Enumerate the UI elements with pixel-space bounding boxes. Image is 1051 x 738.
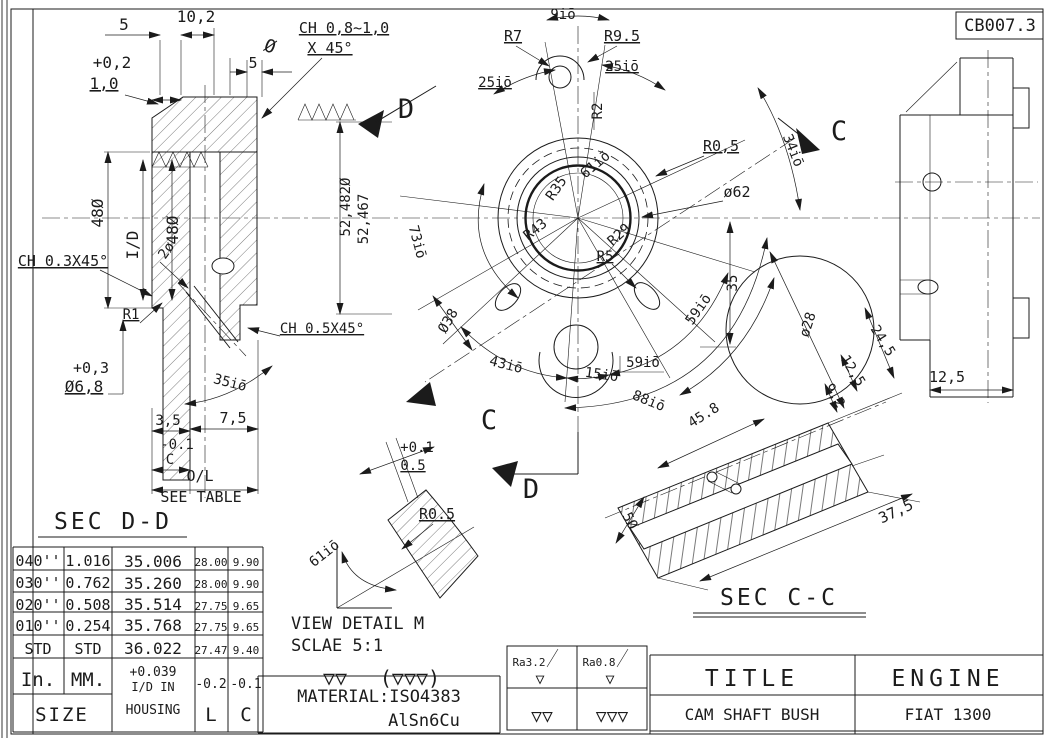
tol-minus-0-1: -0.1 bbox=[160, 437, 194, 453]
side-view bbox=[895, 50, 1038, 403]
detail-tol-plus-0-1: +0.1 bbox=[400, 440, 434, 456]
radius-r1: R1 bbox=[123, 307, 140, 323]
table-cell: 27.75 bbox=[194, 621, 227, 634]
dia-6-8: Ø6,8 bbox=[65, 377, 104, 396]
table-cell: 0.508 bbox=[65, 596, 110, 614]
angle-25-right: 25iō bbox=[605, 59, 639, 75]
radius-r9-5: R9.5 bbox=[604, 27, 640, 45]
finish-ra-finer: Ra0.8 bbox=[582, 656, 615, 669]
title-label: TITLE bbox=[705, 666, 799, 692]
radius-r35: R35 bbox=[543, 174, 571, 204]
dim-52-467: 52,467 bbox=[356, 194, 372, 245]
angle-59-boxed: 59iō bbox=[626, 355, 660, 371]
sec-cc-dim-9-2: 9,2 bbox=[821, 381, 848, 411]
size-table-rows: 040'' 1.016 35.006 28.00 9.90 030'' 0.76… bbox=[15, 552, 259, 658]
finish-tri-double: ▽▽ bbox=[531, 706, 553, 727]
table-cell: 27.47 bbox=[194, 644, 227, 657]
sec-cc-heading: SEC C-C bbox=[720, 585, 838, 611]
radius-r5: R5 bbox=[597, 249, 614, 265]
dia-48-outer: 48Ø bbox=[88, 198, 107, 227]
table-cell: 030'' bbox=[15, 574, 60, 592]
table-header-tol: +0.039 bbox=[130, 665, 177, 680]
chamfer-03-label: CH 0.3X45° bbox=[18, 252, 108, 270]
dim-ol-label: O/L bbox=[186, 467, 213, 485]
chamfer-top-label-2: X 45° bbox=[307, 39, 352, 57]
table-cell: STD bbox=[24, 640, 51, 658]
angle-88: 88iō bbox=[630, 388, 667, 415]
section-letter-c-bottom: C bbox=[481, 405, 497, 436]
table-cell: 9.90 bbox=[233, 578, 260, 591]
finish-tri-single-2: ▽ bbox=[605, 670, 614, 688]
bore-id-label: I/D bbox=[123, 231, 142, 260]
dia-62: ø62 bbox=[723, 183, 750, 201]
radius-r2: R2 bbox=[590, 103, 606, 120]
table-header-housing-2: HOUSING bbox=[126, 703, 181, 718]
angle-59-diagonal: 59iō bbox=[683, 291, 715, 328]
finish-ra-fine: Ra3.2 bbox=[512, 656, 545, 669]
section-cc-view bbox=[605, 252, 920, 590]
table-cell: 010'' bbox=[15, 617, 60, 635]
dim-1-0: 1,0 bbox=[90, 74, 119, 93]
angle-35: 35iō bbox=[212, 371, 249, 395]
table-cell: 0.254 bbox=[65, 617, 110, 635]
section-letter-d-bottom: D bbox=[523, 474, 539, 505]
table-header-in: In. bbox=[21, 669, 55, 691]
table-cell: STD bbox=[74, 640, 101, 658]
cut-arrow-d-top bbox=[358, 110, 384, 138]
table-header-mm: MM. bbox=[71, 669, 105, 691]
table-cell: 35.260 bbox=[124, 574, 182, 593]
part-name: CAM SHAFT BUSH bbox=[685, 705, 820, 724]
angle-73: 73iō bbox=[405, 224, 429, 261]
side-view-dim-12-5: 12,5 bbox=[929, 368, 965, 386]
finish-tri-triple: ▽▽▽ bbox=[596, 706, 629, 727]
table-cell: 9.65 bbox=[233, 621, 260, 634]
angle-25-left: 25iō bbox=[478, 75, 512, 91]
dim-7-5: 7,5 bbox=[219, 409, 246, 427]
table-header-l-tol: -0.2 bbox=[195, 677, 226, 692]
finish-tri-single-1: ▽ bbox=[535, 670, 544, 688]
table-cell: 9.90 bbox=[233, 556, 260, 569]
engine-model: FIAT 1300 bbox=[905, 705, 992, 724]
drawing-sheet: CB007.3 bbox=[0, 0, 1051, 738]
table-header-c-tol: -0.1 bbox=[230, 677, 261, 692]
dim-5-top: 5 bbox=[119, 15, 129, 34]
dia-52-482: 52,482Ø bbox=[338, 177, 354, 237]
chamfer-top-label: CH 0,8~1,0 bbox=[299, 19, 389, 37]
size-table-footer: In. MM. +0.039 I/D IN HOUSING -0.2 L -0.… bbox=[21, 665, 262, 726]
cut-arrow-c-bottom bbox=[406, 382, 436, 406]
detail-dim-0-5: 0.5 bbox=[400, 458, 425, 474]
dim-10-2: 10,2 bbox=[177, 7, 216, 26]
dim-c-label: C bbox=[166, 452, 174, 468]
scale-note: SCLAE 5:1 bbox=[291, 636, 383, 656]
table-cell: 28.00 bbox=[194, 556, 227, 569]
doc-number: CB007.3 bbox=[964, 16, 1036, 36]
sec-dd-heading: SEC D-D bbox=[54, 509, 172, 535]
tol-plus-0-2: +0,2 bbox=[93, 53, 132, 72]
table-cell: 040'' bbox=[15, 552, 60, 570]
view-detail-heading: VIEW DETAIL M bbox=[291, 614, 424, 634]
table-cell: 28.00 bbox=[194, 578, 227, 591]
table-header-c: C bbox=[240, 704, 251, 726]
tol-plus-0-3: +0,3 bbox=[73, 359, 109, 377]
see-table-note: SEE TABLE bbox=[160, 488, 241, 506]
table-cell: 35.514 bbox=[124, 595, 182, 614]
table-header-l: L bbox=[205, 704, 216, 726]
material-line-1: MATERIAL:ISO4383 bbox=[297, 687, 461, 707]
drawing-canvas: CB007.3 bbox=[0, 0, 1051, 738]
table-cell: 9.65 bbox=[233, 600, 260, 613]
diameter-symbol: Ø bbox=[261, 35, 279, 58]
table-cell: 020'' bbox=[15, 596, 60, 614]
table-cell: 9.40 bbox=[233, 644, 260, 657]
sec-cc-dim-45-8: 45.8 bbox=[685, 400, 722, 431]
radius-r0-5: R0,5 bbox=[703, 137, 739, 155]
sec-cc-dia-28: ø28 bbox=[797, 310, 820, 339]
table-cell: 1.016 bbox=[65, 552, 110, 570]
table-header-housing-1: I/D IN bbox=[131, 680, 174, 694]
table-cell: 36.022 bbox=[124, 639, 182, 658]
table-cell: 35.006 bbox=[124, 552, 182, 571]
sec-cc-dim-24-5: 24,5 bbox=[867, 322, 898, 359]
dim-3-5: 3,5 bbox=[155, 413, 180, 429]
section-letter-c-right: C bbox=[831, 116, 847, 147]
table-cell: 35.768 bbox=[124, 616, 182, 635]
chamfer-05-label: CH 0.5X45° bbox=[280, 321, 364, 337]
detail-radius-r0-5: R0.5 bbox=[419, 505, 455, 523]
angle-15: 15iō bbox=[584, 365, 620, 386]
engine-label: ENGINE bbox=[891, 666, 1004, 692]
angle-9: 9iō bbox=[550, 7, 575, 23]
table-cell: 0.762 bbox=[65, 574, 110, 592]
dim-5-dia: 5 bbox=[248, 54, 257, 72]
material-line-2: AlSn6Cu bbox=[388, 711, 460, 731]
dia-38: Ø38 bbox=[435, 306, 462, 336]
sec-cc-dim-12-5: 12,5 bbox=[837, 352, 868, 389]
angle-43: 43iō bbox=[488, 353, 525, 377]
table-header-size: SIZE bbox=[35, 704, 89, 726]
radius-r7: R7 bbox=[504, 27, 522, 45]
table-cell: 27.75 bbox=[194, 600, 227, 613]
section-letter-d-top: D bbox=[398, 94, 414, 125]
